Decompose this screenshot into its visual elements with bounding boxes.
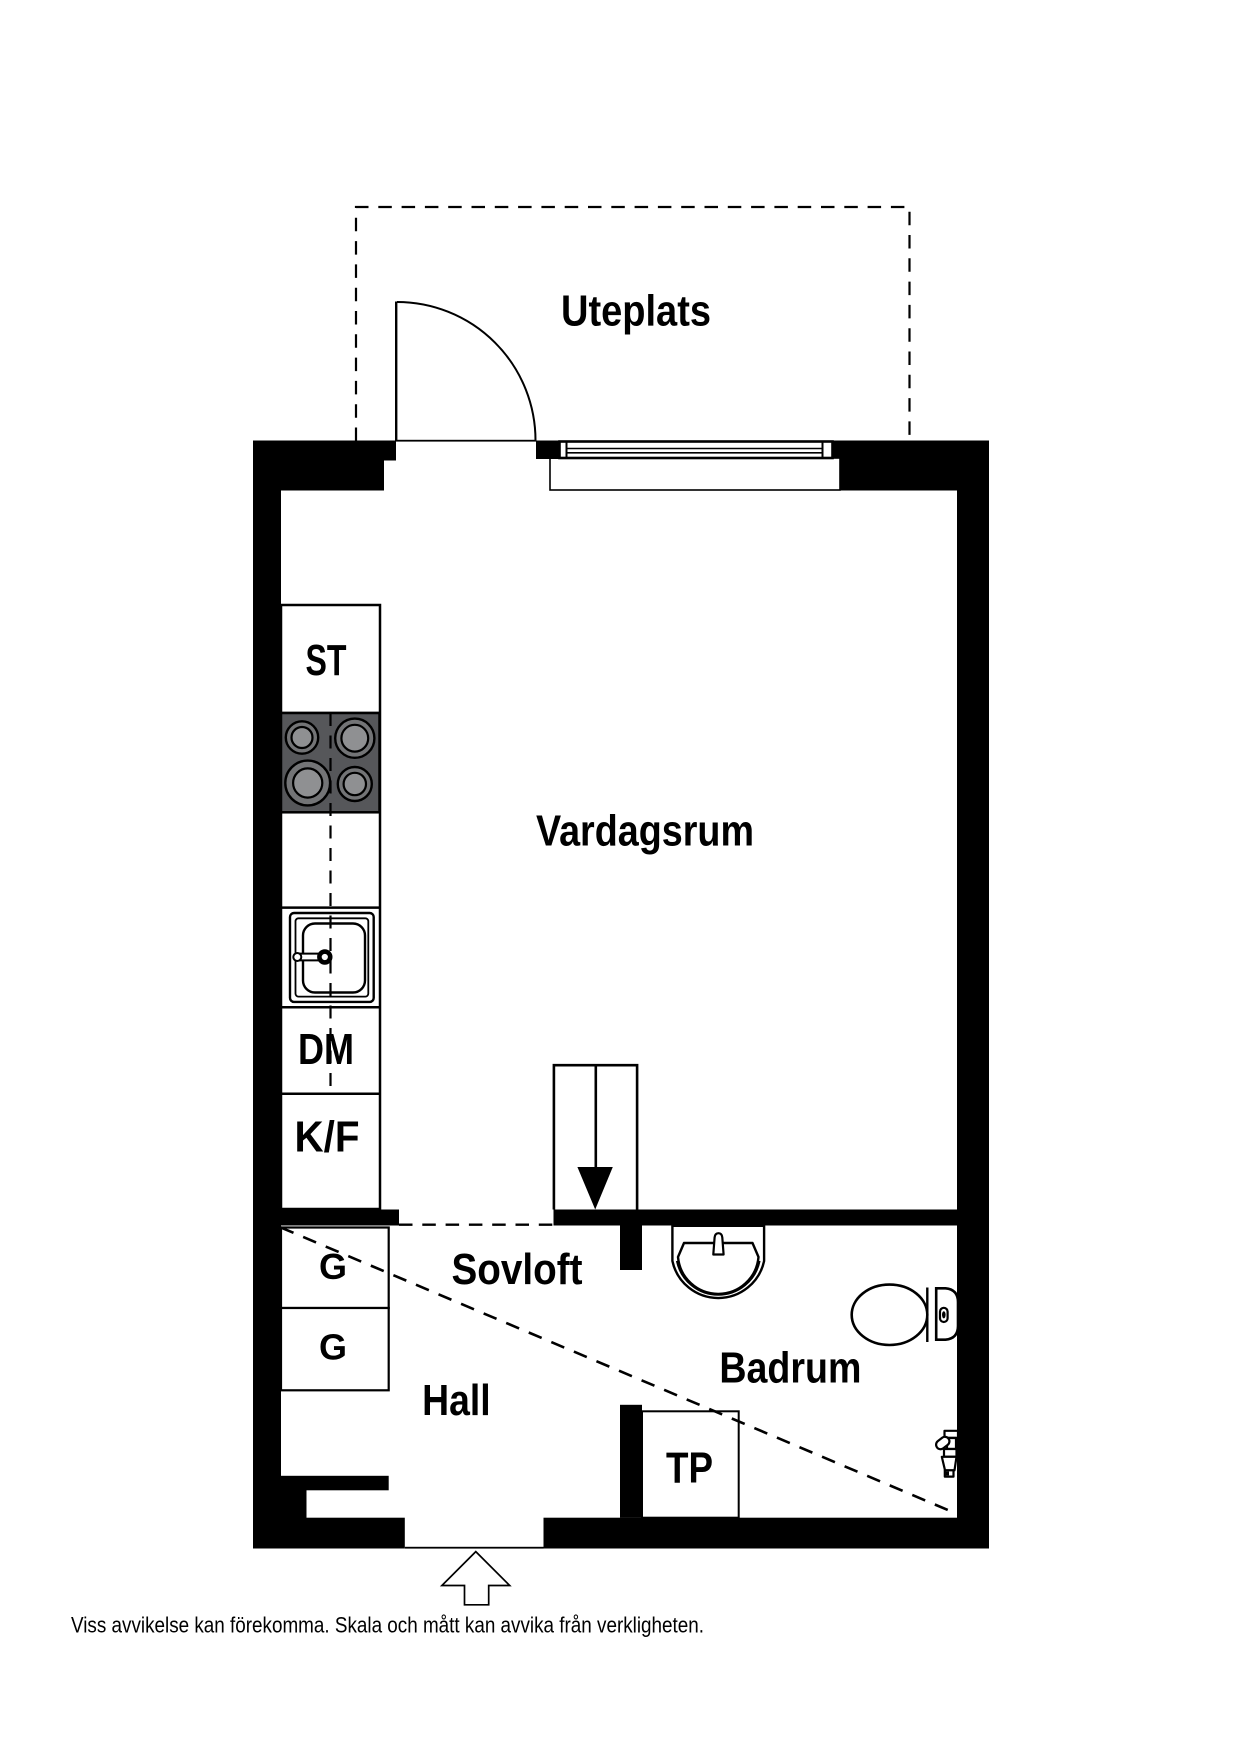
svg-text:TP: TP (666, 1443, 713, 1492)
svg-text:Hall: Hall (422, 1376, 491, 1425)
svg-text:Viss avvikelse kan förekomma.: Viss avvikelse kan förekomma. Skala och … (71, 1613, 704, 1638)
svg-text:G: G (319, 1327, 347, 1368)
svg-text:Sovloft: Sovloft (452, 1245, 583, 1294)
svg-text:K/F: K/F (295, 1112, 360, 1161)
svg-text:G: G (319, 1246, 347, 1287)
svg-text:Vardagsrum: Vardagsrum (536, 806, 754, 855)
svg-text:DM: DM (298, 1025, 354, 1074)
svg-text:ST: ST (306, 636, 347, 685)
svg-text:Badrum: Badrum (719, 1343, 861, 1392)
svg-text:Uteplats: Uteplats (561, 287, 711, 336)
